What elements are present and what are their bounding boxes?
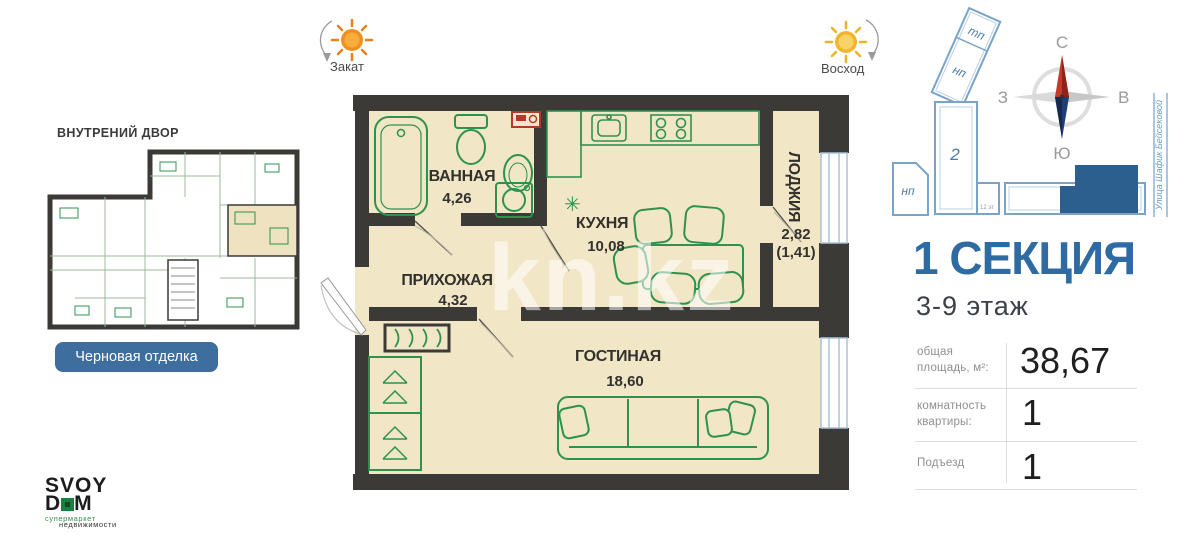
svoydom-logo: SVOY DM супермаркет недвижимости xyxy=(45,477,117,528)
spec-label-entrance: Подъезд xyxy=(917,456,1009,472)
room-area-living: 18,60 xyxy=(606,373,644,390)
room-label-kitchen: КУХНЯ xyxy=(576,215,628,232)
spec-value-rooms: 1 xyxy=(1022,392,1042,434)
sunrise-label: Восход xyxy=(821,61,864,76)
room-area-loggia-reduced: (1,41) xyxy=(776,244,815,261)
electric-panel-icon xyxy=(512,112,540,127)
svg-text:Улица Шафик Бейсековой: Улица Шафик Бейсековой xyxy=(1154,100,1164,211)
spec-value-area: 38,67 xyxy=(1020,340,1110,382)
street-label: Улица Шафик Бейсековой xyxy=(1154,93,1167,217)
site-plan: тп нп С Ю З В нп 2 12 э xyxy=(888,5,1180,220)
floorplan-page: Закат Восход ВНУТРЕНИЙ ДВОР xyxy=(0,0,1200,540)
main-floorplan: ✳ xyxy=(310,95,865,490)
divider xyxy=(915,441,1137,442)
divider xyxy=(915,489,1137,490)
compass-icon: С Ю З В xyxy=(998,33,1130,163)
room-area-loggia: 2,82 xyxy=(781,226,810,243)
sunset-label: Закат xyxy=(330,59,364,74)
compass-west: З xyxy=(998,88,1008,107)
svg-text:2: 2 xyxy=(949,145,960,164)
site-note: 12 эт xyxy=(980,205,994,211)
spec-label-rooms: комнатность квартиры: xyxy=(917,399,1009,430)
room-area-bath: 4,26 xyxy=(442,190,471,207)
room-label-loggia: ЛОДЖИЯ xyxy=(785,152,802,223)
room-label-living: ГОСТИНАЯ xyxy=(575,348,661,365)
logo-line2: DM xyxy=(45,495,117,513)
compass-south: Ю xyxy=(1053,144,1070,163)
outbuilding: тп нп xyxy=(932,8,1000,106)
radiator xyxy=(385,325,449,351)
spec-label-area: общая площадь, м²: xyxy=(917,345,1009,376)
section-title: 1 СЕКЦИЯ xyxy=(913,231,1135,285)
sofa xyxy=(558,397,768,459)
room-area-kitchen: 10,08 xyxy=(587,238,625,255)
divider-vertical xyxy=(1006,343,1007,483)
highlighted-section-1[interactable] xyxy=(1060,165,1138,213)
room-area-hall: 4,32 xyxy=(438,292,467,309)
finish-type-button[interactable]: Черновая отделка xyxy=(55,342,218,372)
np-building: нп xyxy=(893,163,928,215)
room-label-bath: ВАННАЯ xyxy=(429,168,496,185)
mini-plan-highlighted-unit[interactable] xyxy=(228,205,297,256)
mini-floorplan xyxy=(45,148,305,333)
svg-text:нп: нп xyxy=(901,184,915,198)
compass-north: С xyxy=(1056,33,1068,52)
spec-value-entrance: 1 xyxy=(1022,446,1042,488)
compass-east: В xyxy=(1118,88,1129,107)
room-label-hall: ПРИХОЖАЯ xyxy=(401,272,492,289)
building-2: 2 12 эт xyxy=(935,102,999,214)
building-1: 1 xyxy=(1005,165,1145,214)
logo-square-icon xyxy=(61,498,74,511)
logo-tagline2: недвижимости xyxy=(59,522,117,528)
wardrobe xyxy=(369,357,421,470)
section-floors: 3-9 этаж xyxy=(916,291,1029,322)
fridge-snowflake-icon: ✳ xyxy=(564,194,581,216)
divider xyxy=(915,388,1137,389)
courtyard-label: ВНУТРЕНИЙ ДВОР xyxy=(57,126,179,140)
